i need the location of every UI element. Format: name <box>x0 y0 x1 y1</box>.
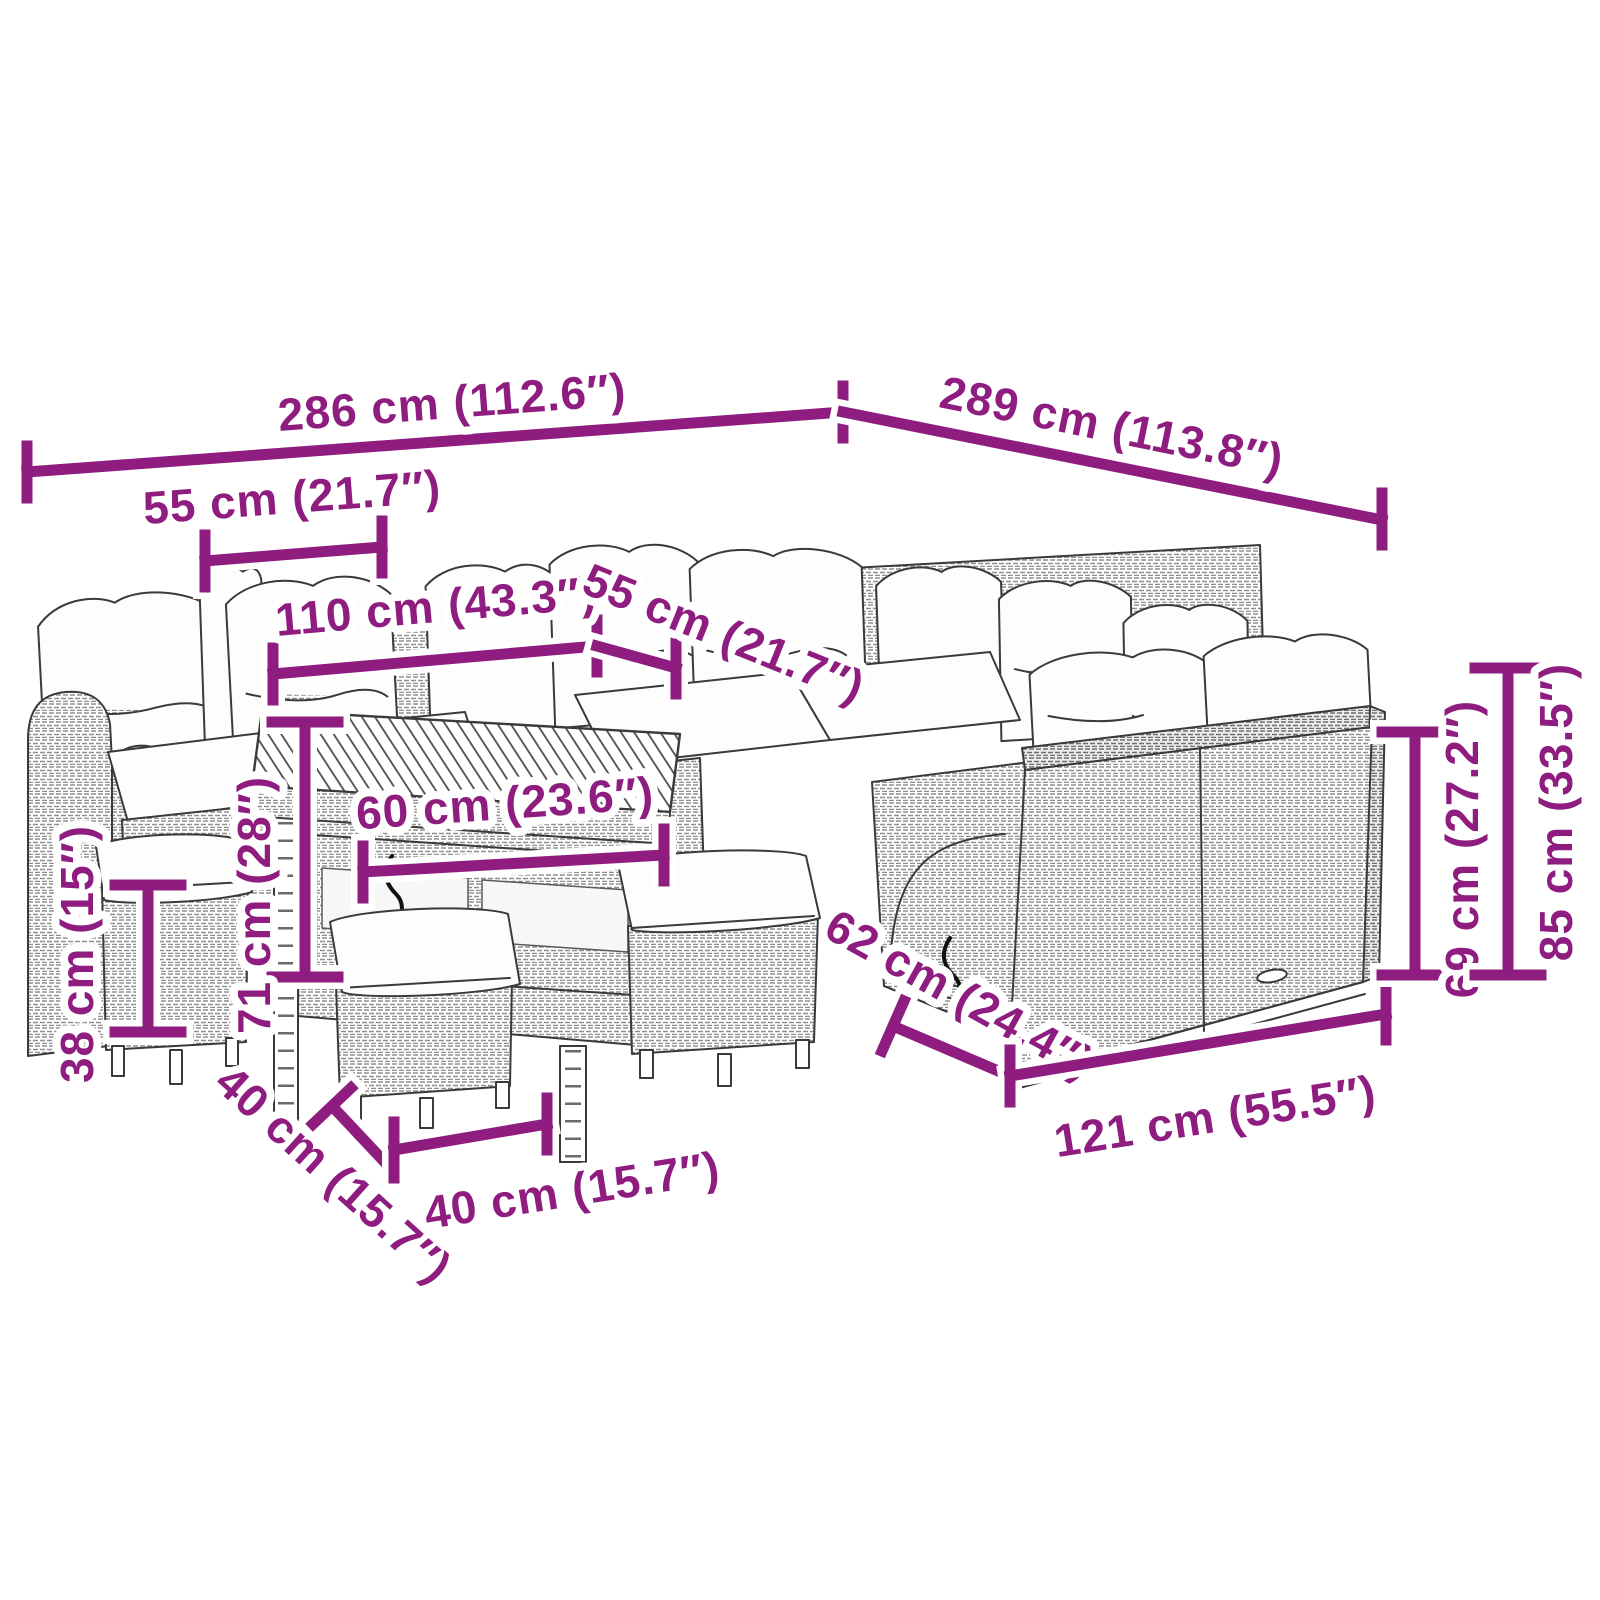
dim-stool-width: 40 cm (15.7″) <box>394 1098 723 1239</box>
dim-height-total: 85 cm (33.5″) <box>1475 663 1582 975</box>
dim-label-height-total: 85 cm (33.5″) <box>1530 663 1582 961</box>
stool-leg <box>420 1098 433 1128</box>
dim-label-backrest-height: 69 cm (27.2″) <box>1436 700 1488 998</box>
dim-seat-width: 55 cm (21.7″) <box>141 460 442 587</box>
stool-leg <box>718 1054 731 1086</box>
diagram-canvas: 286 cm (112.6″) 289 cm (113.8″) 55 cm (2… <box>0 0 1600 1600</box>
dim-label-sofa-width: 121 cm (55.5″) <box>1050 1065 1379 1167</box>
stool-3 <box>618 850 820 1086</box>
dim-backrest-height: 69 cm (27.2″) <box>1382 700 1488 998</box>
stool-leg <box>496 1082 509 1108</box>
stool-leg <box>796 1040 809 1068</box>
stool-leg <box>112 1046 124 1076</box>
dim-label-table-height: 71 cm (28″) <box>228 776 280 1034</box>
stool-body <box>628 914 818 1054</box>
dim-label-stool-height: 38 cm (15″) <box>51 825 103 1083</box>
stool-leg <box>170 1050 182 1084</box>
furniture-dimension-diagram: 286 cm (112.6″) 289 cm (113.8″) 55 cm (2… <box>0 0 1600 1600</box>
dim-depth-total: 289 cm (113.8″) <box>843 366 1382 545</box>
stool-leg <box>640 1050 653 1078</box>
